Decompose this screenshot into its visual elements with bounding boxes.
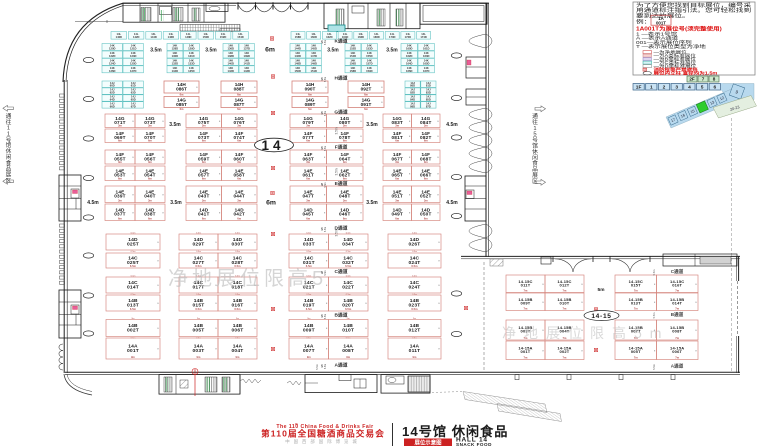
svg-text:033T: 033T xyxy=(303,242,315,248)
svg-text:6m: 6m xyxy=(395,177,399,181)
svg-text:6.5m: 6.5m xyxy=(130,307,137,311)
svg-text:3.5m: 3.5m xyxy=(335,127,339,134)
svg-text:2F: 2F xyxy=(689,77,695,82)
svg-text:5.5m: 5.5m xyxy=(324,111,327,116)
svg-text:005T: 005T xyxy=(631,349,641,354)
svg-text:050T: 050T xyxy=(420,212,431,217)
svg-text:5.5m: 5.5m xyxy=(315,364,319,370)
svg-text:6m: 6m xyxy=(266,200,276,207)
svg-text:149D: 149D xyxy=(310,61,316,65)
svg-text:9m: 9m xyxy=(131,355,135,359)
svg-text:3m: 3m xyxy=(395,124,399,128)
svg-text:4.5m: 4.5m xyxy=(446,122,458,128)
svg-text:14-15: 14-15 xyxy=(591,313,611,320)
svg-text:126D: 126D xyxy=(109,69,115,73)
svg-text:003T: 003T xyxy=(193,348,205,354)
svg-text:5.5m: 5.5m xyxy=(324,77,327,82)
svg-text:132D: 132D xyxy=(172,61,178,65)
svg-text:往: 往 xyxy=(6,118,12,126)
svg-text:§: § xyxy=(321,364,323,368)
svg-text:82D: 82D xyxy=(410,91,415,95)
svg-text:7m: 7m xyxy=(524,289,528,293)
svg-text:007T: 007T xyxy=(303,348,315,354)
svg-text:3m: 3m xyxy=(237,124,241,128)
svg-text:029T: 029T xyxy=(193,242,205,248)
svg-text:§: § xyxy=(321,146,323,150)
svg-text:122D: 122D xyxy=(109,54,115,58)
svg-text:039T: 039T xyxy=(114,194,125,199)
svg-text:131D: 131D xyxy=(188,54,194,58)
svg-text:3m: 3m xyxy=(306,160,310,164)
svg-text:159D: 159D xyxy=(366,69,372,73)
svg-text:2: 2 xyxy=(663,85,666,91)
svg-text:144D: 144D xyxy=(150,35,156,39)
svg-text:010T: 010T xyxy=(342,328,354,334)
svg-text:034T: 034T xyxy=(342,242,354,248)
svg-text:7m: 7m xyxy=(675,307,679,311)
svg-text:006T: 006T xyxy=(232,328,244,334)
svg-text:84D: 84D xyxy=(410,98,415,102)
svg-text:160D: 160D xyxy=(406,47,412,51)
svg-text:024T: 024T xyxy=(409,285,421,291)
svg-text:3m: 3m xyxy=(424,199,428,203)
svg-text:7m: 7m xyxy=(675,356,679,360)
svg-text:165D: 165D xyxy=(423,61,429,65)
svg-text:60D: 60D xyxy=(110,84,115,88)
svg-text:展位内立柱 直径均为1.5m: 展位内立柱 直径均为1.5m xyxy=(654,70,719,76)
svg-text:7m: 7m xyxy=(675,336,679,340)
svg-text:6m: 6m xyxy=(395,139,399,143)
svg-text:3.5m: 3.5m xyxy=(150,48,162,54)
svg-text:008T: 008T xyxy=(672,329,682,334)
svg-text:129D: 129D xyxy=(188,47,194,51)
svg-text:80D: 80D xyxy=(410,84,415,88)
svg-text:3m: 3m xyxy=(343,199,347,203)
svg-text:3: 3 xyxy=(675,85,678,91)
svg-text:B通道: B通道 xyxy=(671,311,684,318)
svg-text:014T: 014T xyxy=(127,285,139,291)
svg-text:040T: 040T xyxy=(144,194,155,199)
svg-text:174D: 174D xyxy=(420,35,426,39)
svg-text:011T: 011T xyxy=(521,282,531,287)
svg-text:089T: 089T xyxy=(305,102,316,107)
svg-text:016T: 016T xyxy=(672,282,682,287)
svg-text:A通道: A通道 xyxy=(334,362,347,369)
svg-text:160D: 160D xyxy=(310,35,316,39)
svg-text:009T: 009T xyxy=(303,328,315,334)
svg-text:011T: 011T xyxy=(409,348,421,354)
svg-text:139D: 139D xyxy=(243,54,249,58)
svg-text:A通道: A通道 xyxy=(671,363,684,370)
svg-text:F通道: F通道 xyxy=(335,144,348,151)
svg-text:154D: 154D xyxy=(350,54,356,58)
svg-text:026T: 026T xyxy=(409,242,421,248)
svg-text:5.5m: 5.5m xyxy=(324,364,327,369)
svg-text:5.5m: 5.5m xyxy=(652,364,656,370)
svg-text:010T: 010T xyxy=(560,300,570,305)
svg-text:6.5m: 6.5m xyxy=(234,307,241,311)
svg-text:162D: 162D xyxy=(326,35,332,39)
svg-text:9m: 9m xyxy=(197,355,201,359)
svg-text:64D: 64D xyxy=(110,98,115,102)
svg-text:6m: 6m xyxy=(202,139,206,143)
svg-text:3m: 3m xyxy=(148,160,152,164)
svg-text:6.5m: 6.5m xyxy=(411,307,418,311)
svg-text:3.5m: 3.5m xyxy=(205,48,217,54)
svg-text:6m: 6m xyxy=(118,217,122,221)
svg-text:食: 食 xyxy=(532,159,538,167)
svg-text:120D: 120D xyxy=(109,47,115,51)
svg-text:3m: 3m xyxy=(395,160,399,164)
svg-text:142D: 142D xyxy=(133,35,139,39)
svg-text:157D: 157D xyxy=(366,61,372,65)
svg-text:4: 4 xyxy=(688,85,691,91)
svg-text:128D: 128D xyxy=(172,47,178,51)
svg-text:5m: 5m xyxy=(598,287,605,293)
svg-text:3m: 3m xyxy=(306,199,310,203)
svg-text:002T: 002T xyxy=(560,349,570,354)
svg-text:037T: 037T xyxy=(114,212,125,217)
svg-text:145D: 145D xyxy=(310,47,316,51)
svg-text:9m: 9m xyxy=(236,355,240,359)
svg-text:158D: 158D xyxy=(350,69,356,73)
svg-text:087T: 087T xyxy=(234,102,245,107)
svg-text:012T: 012T xyxy=(409,328,421,334)
svg-text:区: 区 xyxy=(6,177,12,184)
svg-text:9m: 9m xyxy=(307,355,311,359)
svg-text:6m: 6m xyxy=(148,177,152,181)
svg-text:135D: 135D xyxy=(188,69,194,73)
svg-text:通: 通 xyxy=(532,112,538,120)
svg-text:3.5m: 3.5m xyxy=(366,200,378,206)
svg-text:6m: 6m xyxy=(148,139,152,143)
svg-text:170D: 170D xyxy=(389,35,395,39)
svg-text:81D: 81D xyxy=(426,84,431,88)
svg-text:往: 往 xyxy=(532,118,538,126)
svg-text:167D: 167D xyxy=(423,69,429,73)
svg-text:141D: 141D xyxy=(243,61,249,65)
svg-text:3.5m: 3.5m xyxy=(335,168,339,175)
svg-text:E通道: E通道 xyxy=(335,180,348,187)
svg-text:C通道: C通道 xyxy=(671,268,684,275)
svg-text:121D: 121D xyxy=(130,47,136,51)
svg-text:7m: 7m xyxy=(634,356,638,360)
svg-text:6m: 6m xyxy=(343,139,347,143)
svg-text:6m: 6m xyxy=(237,139,241,143)
svg-text:§: § xyxy=(321,183,323,187)
svg-text:6m: 6m xyxy=(306,177,310,181)
svg-text:038T: 038T xyxy=(144,212,155,217)
svg-text:6m: 6m xyxy=(395,217,399,221)
svg-text:015T: 015T xyxy=(631,282,641,287)
svg-text:144D: 144D xyxy=(294,47,300,51)
svg-text:156D: 156D xyxy=(350,61,356,65)
svg-text:休: 休 xyxy=(532,147,538,155)
svg-text:馆: 馆 xyxy=(6,141,12,149)
svg-text:166D: 166D xyxy=(406,69,412,73)
svg-text:7m: 7m xyxy=(563,356,567,360)
svg-text:5.5m: 5.5m xyxy=(324,146,327,151)
svg-text:6m: 6m xyxy=(118,139,122,143)
svg-text:§: § xyxy=(321,111,323,115)
svg-text:87D: 87D xyxy=(426,104,431,108)
svg-text:3m: 3m xyxy=(148,199,152,203)
svg-text:152D: 152D xyxy=(220,35,226,39)
svg-text:3m: 3m xyxy=(395,199,399,203)
svg-text:4.5m: 4.5m xyxy=(446,200,458,206)
svg-text:163D: 163D xyxy=(423,54,429,58)
svg-text:中国西部国际博览城: 中国西部国际博览城 xyxy=(285,438,361,445)
svg-text:052T: 052T xyxy=(420,194,431,199)
svg-text:66D: 66D xyxy=(110,104,115,108)
svg-text:6m: 6m xyxy=(202,177,206,181)
svg-text:6m: 6m xyxy=(424,139,428,143)
svg-text:133D: 133D xyxy=(188,61,194,65)
svg-text:B通道: B通道 xyxy=(334,312,347,319)
svg-text:63D: 63D xyxy=(131,91,136,95)
svg-text:3m: 3m xyxy=(306,124,310,128)
svg-text:3m: 3m xyxy=(118,124,122,128)
svg-text:088T: 088T xyxy=(234,87,245,92)
svg-text:G通道: G通道 xyxy=(334,109,348,116)
svg-text:H通道: H通道 xyxy=(334,75,347,82)
svg-text:6m: 6m xyxy=(265,47,275,54)
svg-text:6m: 6m xyxy=(424,217,428,221)
svg-text:展位示意图: 展位示意图 xyxy=(415,438,443,446)
svg-text:138D: 138D xyxy=(227,54,233,58)
svg-text:3m: 3m xyxy=(148,124,152,128)
svg-text:150D: 150D xyxy=(294,69,300,73)
svg-text:3.5m: 3.5m xyxy=(366,122,378,128)
svg-text:6m: 6m xyxy=(343,217,347,221)
svg-text:3m: 3m xyxy=(424,124,428,128)
svg-text:3m: 3m xyxy=(202,199,206,203)
svg-text:3m: 3m xyxy=(118,160,122,164)
svg-text:14: 14 xyxy=(261,138,284,153)
svg-text:002T: 002T xyxy=(127,328,139,334)
svg-text:130D: 130D xyxy=(172,54,178,58)
svg-text:7m: 7m xyxy=(634,307,638,311)
svg-text:5.5m: 5.5m xyxy=(652,313,656,319)
svg-text:124D: 124D xyxy=(109,61,115,65)
svg-text:008T: 008T xyxy=(342,348,354,354)
svg-text:048T: 048T xyxy=(339,194,350,199)
svg-text:馆: 馆 xyxy=(532,142,538,150)
svg-text:009T: 009T xyxy=(521,300,531,305)
svg-text:5.5m: 5.5m xyxy=(324,40,327,45)
svg-text:7m: 7m xyxy=(563,307,567,311)
svg-text:022T: 022T xyxy=(342,285,354,291)
svg-text:7m: 7m xyxy=(634,289,638,293)
svg-text:148D: 148D xyxy=(294,61,300,65)
svg-text:闲: 闲 xyxy=(532,153,538,161)
svg-text:3m: 3m xyxy=(343,160,347,164)
svg-text:046T: 046T xyxy=(339,212,350,217)
svg-text:146D: 146D xyxy=(294,54,300,58)
svg-text:166D: 166D xyxy=(358,35,364,39)
svg-text:闲: 闲 xyxy=(6,153,12,161)
svg-text:155D: 155D xyxy=(366,54,372,58)
svg-text:5.5m: 5.5m xyxy=(324,182,327,187)
svg-text:§: § xyxy=(321,227,323,231)
svg-text:7m: 7m xyxy=(524,307,528,311)
svg-text:086T: 086T xyxy=(176,87,187,92)
svg-text:5: 5 xyxy=(701,85,704,91)
svg-text:5.5m: 5.5m xyxy=(324,227,327,232)
svg-text:7m: 7m xyxy=(675,289,679,293)
svg-text:th: th xyxy=(295,422,298,426)
svg-text:153D: 153D xyxy=(366,47,372,51)
svg-text:6.5m: 6.5m xyxy=(195,307,202,311)
svg-text:3.5m: 3.5m xyxy=(327,48,339,54)
svg-text:001T: 001T xyxy=(521,349,531,354)
svg-text:休: 休 xyxy=(6,147,12,155)
svg-text:041T: 041T xyxy=(198,212,209,217)
svg-text:3m: 3m xyxy=(237,160,241,164)
svg-text:6m: 6m xyxy=(237,177,241,181)
svg-text:3.5m: 3.5m xyxy=(169,122,181,128)
svg-text:150D: 150D xyxy=(203,35,209,39)
svg-text:013T: 013T xyxy=(631,300,641,305)
svg-text:8: 8 xyxy=(713,77,716,82)
svg-text:3.5m: 3.5m xyxy=(170,200,182,206)
svg-text:001T: 001T xyxy=(127,348,139,354)
svg-text:6m: 6m xyxy=(118,177,122,181)
svg-text:6.5m: 6.5m xyxy=(345,307,352,311)
svg-text:6: 6 xyxy=(713,85,716,91)
svg-text:例：: 例： xyxy=(636,18,651,25)
svg-text:6m: 6m xyxy=(237,217,241,221)
svg-text:134D: 134D xyxy=(172,69,178,73)
svg-text:127D: 127D xyxy=(130,69,136,73)
svg-text:净地展位限高5m: 净地展位限高5m xyxy=(502,325,669,341)
svg-text:137D: 137D xyxy=(243,47,249,51)
svg-text:004T: 004T xyxy=(232,348,244,354)
svg-text:049T: 049T xyxy=(391,212,402,217)
svg-text:4.5m: 4.5m xyxy=(87,200,99,206)
svg-text:162D: 162D xyxy=(406,54,412,58)
svg-text:3m: 3m xyxy=(237,199,241,203)
svg-text:051T: 051T xyxy=(391,194,402,199)
svg-text:152D: 152D xyxy=(350,47,356,51)
svg-text:140D: 140D xyxy=(116,35,122,39)
svg-text:044T: 044T xyxy=(233,194,244,199)
svg-text:食: 食 xyxy=(6,159,12,167)
svg-text:9m: 9m xyxy=(413,355,417,359)
svg-text:146D: 146D xyxy=(168,35,174,39)
svg-text:125D: 125D xyxy=(130,61,136,65)
svg-text:6.5m: 6.5m xyxy=(306,307,313,311)
svg-text:3.5m: 3.5m xyxy=(386,48,398,54)
svg-text:1F: 1F xyxy=(636,85,642,91)
svg-text:042T: 042T xyxy=(233,212,244,217)
svg-text:151D: 151D xyxy=(310,69,316,73)
svg-text:3.5m: 3.5m xyxy=(335,229,339,236)
svg-text:通: 通 xyxy=(6,112,12,120)
svg-text:030T: 030T xyxy=(232,242,244,248)
svg-text:§: § xyxy=(321,77,323,81)
svg-text:3m: 3m xyxy=(202,160,206,164)
svg-text:85D: 85D xyxy=(426,98,431,102)
svg-text:092T: 092T xyxy=(361,87,372,92)
svg-text:67D: 67D xyxy=(131,104,136,108)
svg-text:86D: 86D xyxy=(410,104,415,108)
svg-text:§: § xyxy=(321,40,323,44)
svg-text:001T: 001T xyxy=(656,20,666,25)
svg-text:3m: 3m xyxy=(118,199,122,203)
svg-text:172D: 172D xyxy=(405,35,411,39)
svg-text:K通道: K通道 xyxy=(334,38,347,45)
svg-text:136D: 136D xyxy=(227,47,233,51)
svg-text:7: 7 xyxy=(702,77,705,82)
svg-text:012T: 012T xyxy=(560,282,570,287)
svg-text:6m: 6m xyxy=(148,217,152,221)
svg-text:158D: 158D xyxy=(295,35,301,39)
svg-text:143D: 143D xyxy=(243,69,249,73)
svg-text:6.5m: 6.5m xyxy=(345,264,352,268)
svg-text:83D: 83D xyxy=(426,91,431,95)
svg-text:045T: 045T xyxy=(302,212,313,217)
svg-text:6m: 6m xyxy=(202,217,206,221)
svg-text:SNACK FOOD: SNACK FOOD xyxy=(456,442,492,446)
svg-text:168D: 168D xyxy=(373,35,379,39)
svg-text:164D: 164D xyxy=(342,35,348,39)
svg-text:§: § xyxy=(321,314,323,318)
svg-text:161D: 161D xyxy=(423,47,429,51)
svg-text:025T: 025T xyxy=(127,242,139,248)
svg-text:第110届全国糖酒商品交易会: 第110届全国糖酒商品交易会 xyxy=(261,428,385,439)
svg-text:148D: 148D xyxy=(185,35,191,39)
svg-text:090T: 090T xyxy=(305,87,316,92)
svg-text:123D: 123D xyxy=(130,54,136,58)
svg-text:净地展位限高5: 净地展位限高5 xyxy=(168,267,327,290)
svg-text:142D: 142D xyxy=(227,69,233,73)
svg-text:014T: 014T xyxy=(672,300,682,305)
svg-text:61D: 61D xyxy=(131,84,136,88)
svg-text:154D: 154D xyxy=(237,35,243,39)
svg-text:006T: 006T xyxy=(672,349,682,354)
svg-text:C通道: C通道 xyxy=(334,268,347,275)
svg-text:3m: 3m xyxy=(343,124,347,128)
svg-text:T —表示展位类型为净地: T —表示展位类型为净地 xyxy=(636,43,706,50)
svg-text:3m: 3m xyxy=(424,160,428,164)
svg-text:164D: 164D xyxy=(406,61,412,65)
svg-text:6m: 6m xyxy=(424,177,428,181)
svg-text:7m: 7m xyxy=(524,356,528,360)
svg-text:3m: 3m xyxy=(202,124,206,128)
svg-text:147D: 147D xyxy=(310,54,316,58)
svg-text:6m: 6m xyxy=(306,217,310,221)
svg-text:1: 1 xyxy=(650,85,653,91)
svg-text:043T: 043T xyxy=(198,194,209,199)
svg-text:65D: 65D xyxy=(131,98,136,102)
svg-text:7m: 7m xyxy=(563,289,567,293)
svg-text:6m: 6m xyxy=(306,139,310,143)
svg-text:6.5m: 6.5m xyxy=(411,264,418,268)
svg-text:5.5m: 5.5m xyxy=(324,314,327,319)
svg-text:140D: 140D xyxy=(227,61,233,65)
svg-text:5.5m: 5.5m xyxy=(652,270,656,276)
svg-text:091T: 091T xyxy=(361,102,372,107)
svg-text:047T: 047T xyxy=(302,194,313,199)
svg-text:62D: 62D xyxy=(110,91,115,95)
svg-text:9m: 9m xyxy=(346,355,350,359)
svg-text:005T: 005T xyxy=(193,328,205,334)
svg-text:6m: 6m xyxy=(343,177,347,181)
svg-text:6.5m: 6.5m xyxy=(130,264,137,268)
svg-text:085T: 085T xyxy=(176,102,187,107)
